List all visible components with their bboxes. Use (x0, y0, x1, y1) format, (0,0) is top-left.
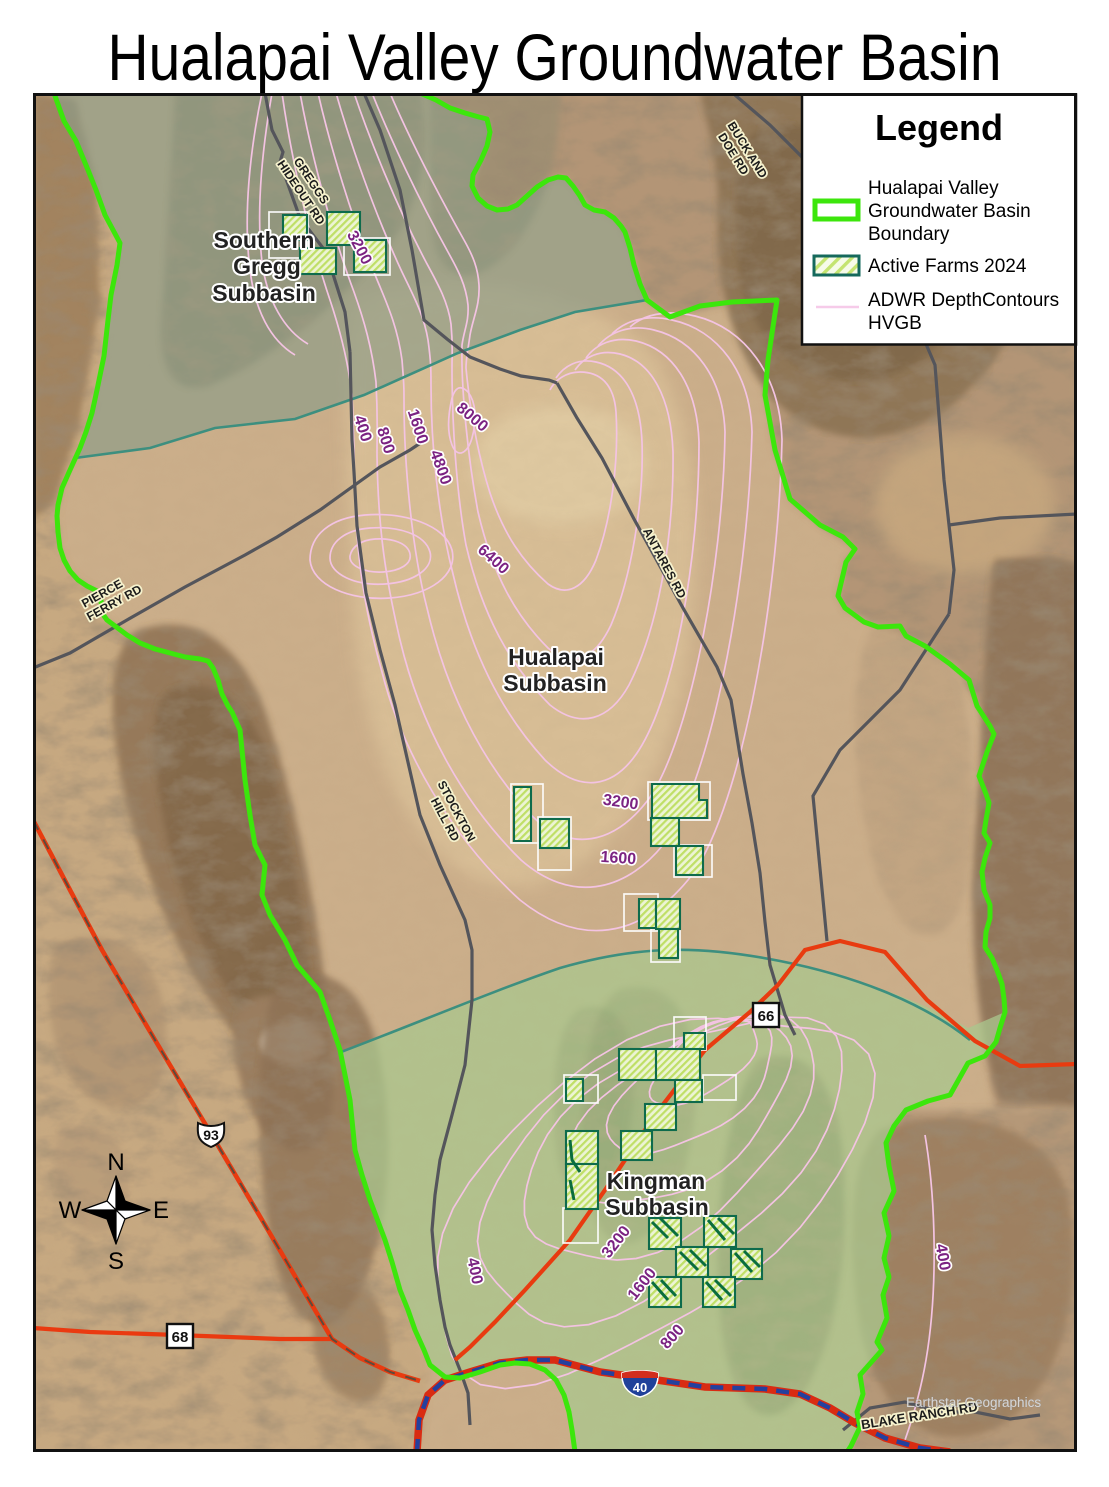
svg-text:Active Farms 2024: Active Farms 2024 (868, 256, 1027, 277)
svg-text:Hualapai: Hualapai (508, 644, 604, 670)
svg-text:HVGB: HVGB (868, 313, 922, 334)
svg-text:Boundary: Boundary (868, 224, 950, 245)
svg-text:93: 93 (203, 1127, 219, 1143)
svg-text:W: W (59, 1197, 82, 1224)
svg-text:66: 66 (758, 1008, 775, 1025)
svg-text:1600: 1600 (600, 849, 637, 868)
svg-text:Legend: Legend (875, 107, 1003, 148)
svg-text:Subbasin: Subbasin (212, 280, 316, 306)
svg-text:Subbasin: Subbasin (503, 670, 607, 696)
svg-text:Kingman: Kingman (607, 1168, 705, 1194)
svg-text:N: N (107, 1149, 124, 1176)
svg-text:Groundwater Basin: Groundwater Basin (868, 201, 1031, 222)
svg-text:68: 68 (172, 1329, 189, 1346)
svg-text:ADWR DepthContours: ADWR DepthContours (868, 290, 1059, 311)
svg-text:E: E (153, 1197, 169, 1224)
svg-text:40: 40 (633, 1380, 647, 1395)
svg-text:Subbasin: Subbasin (605, 1194, 709, 1220)
svg-text:Earthstar Geographics: Earthstar Geographics (906, 1395, 1041, 1410)
svg-text:S: S (108, 1248, 124, 1275)
svg-text:Hualapai Valley: Hualapai Valley (868, 178, 999, 199)
svg-text:Southern: Southern (214, 227, 315, 253)
svg-text:Gregg: Gregg (233, 253, 301, 279)
